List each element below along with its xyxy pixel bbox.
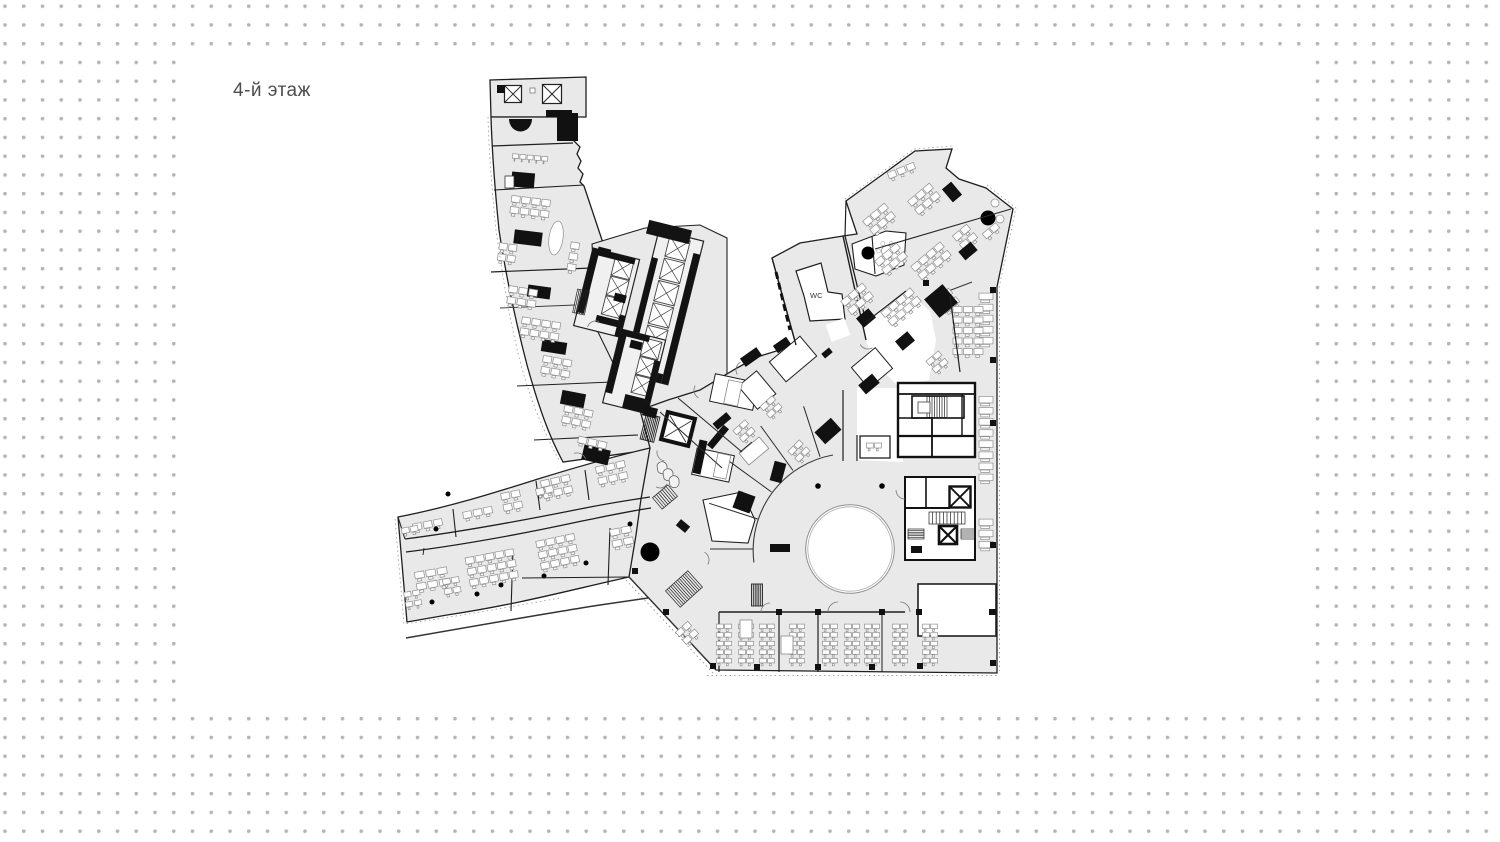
svg-text:WC: WC (810, 291, 823, 300)
